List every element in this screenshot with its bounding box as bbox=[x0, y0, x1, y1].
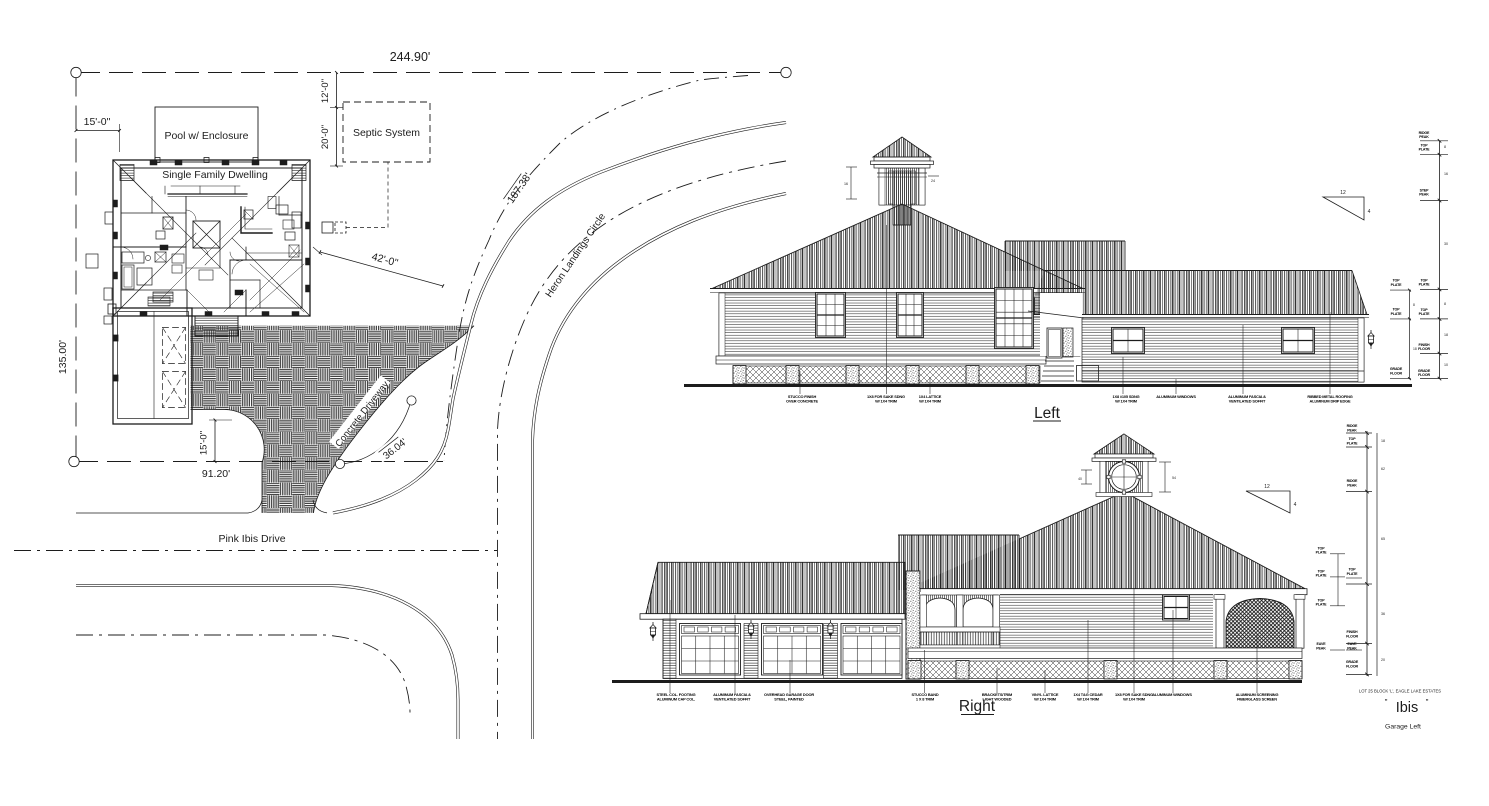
svg-text:PLATE: PLATE bbox=[1316, 574, 1328, 578]
svg-text:18: 18 bbox=[1444, 333, 1448, 337]
svg-text:ALUMINUM WINDOWS: ALUMINUM WINDOWS bbox=[1156, 394, 1196, 399]
svg-text:PEAK: PEAK bbox=[1347, 428, 1357, 432]
svg-text:18: 18 bbox=[1381, 439, 1385, 443]
svg-text:Garage Left: Garage Left bbox=[1385, 724, 1421, 731]
svg-text:54: 54 bbox=[1172, 476, 1176, 480]
svg-text:ALUMINUM CAP COL.: ALUMINUM CAP COL. bbox=[657, 697, 695, 702]
svg-text:8: 8 bbox=[1444, 145, 1446, 149]
svg-text:10: 10 bbox=[1444, 363, 1448, 367]
svg-text:20'-0": 20'-0" bbox=[320, 125, 331, 149]
svg-text:91.20': 91.20' bbox=[202, 468, 230, 480]
svg-text:FLOOR: FLOOR bbox=[1418, 373, 1430, 377]
svg-text:18: 18 bbox=[1413, 347, 1417, 351]
svg-text:16: 16 bbox=[1444, 172, 1448, 176]
svg-text:Pink Ibis Drive: Pink Ibis Drive bbox=[218, 533, 285, 545]
svg-text:Septic System: Septic System bbox=[353, 127, 420, 139]
svg-text:ALUMINUM WINDOWS: ALUMINUM WINDOWS bbox=[1152, 692, 1192, 697]
svg-text:PLATE: PLATE bbox=[1391, 283, 1403, 287]
svg-text:W/ 1X4 TRIM: W/ 1X4 TRIM bbox=[1123, 697, 1145, 702]
svg-text:W/ 1X4 TRIM: W/ 1X4 TRIM bbox=[919, 399, 941, 404]
svg-text:244.90': 244.90' bbox=[390, 50, 431, 64]
svg-text:": " bbox=[1385, 698, 1388, 707]
svg-text:20: 20 bbox=[1381, 658, 1385, 662]
svg-text:OVER CONCRETE: OVER CONCRETE bbox=[786, 399, 819, 404]
svg-text:12: 12 bbox=[1264, 484, 1270, 490]
svg-text:FIBERGLASS SCREEN: FIBERGLASS SCREEN bbox=[1237, 697, 1277, 702]
svg-text:8: 8 bbox=[1444, 302, 1446, 306]
svg-text:PLATE: PLATE bbox=[1316, 603, 1328, 607]
svg-text:15'-0": 15'-0" bbox=[84, 116, 111, 128]
svg-text:Pool w/ Enclosure: Pool w/ Enclosure bbox=[164, 130, 248, 142]
svg-text:8: 8 bbox=[1413, 303, 1415, 307]
svg-text:4: 4 bbox=[1368, 209, 1371, 215]
svg-text:W/ 1X4 TRIM: W/ 1X4 TRIM bbox=[1034, 697, 1056, 702]
svg-text:PLATE: PLATE bbox=[1391, 312, 1403, 316]
svg-text:FLOOR: FLOOR bbox=[1418, 347, 1430, 351]
svg-text:Single Family Dwelling: Single Family Dwelling bbox=[162, 169, 268, 181]
svg-text:65: 65 bbox=[1381, 537, 1385, 541]
svg-text:16: 16 bbox=[844, 182, 848, 186]
svg-text:FLOOR: FLOOR bbox=[1346, 634, 1358, 638]
svg-text:40: 40 bbox=[1078, 477, 1082, 481]
svg-text:VENTILATED SOFFIT: VENTILATED SOFFIT bbox=[714, 697, 751, 702]
svg-text:PEAK: PEAK bbox=[1419, 135, 1429, 139]
svg-text:62: 62 bbox=[1381, 467, 1385, 471]
svg-text:W/ 1X4 TRIM: W/ 1X4 TRIM bbox=[875, 399, 897, 404]
svg-text:12'-0": 12'-0" bbox=[320, 79, 331, 103]
svg-text:1 X 8 TRIM: 1 X 8 TRIM bbox=[916, 697, 934, 702]
svg-text:12: 12 bbox=[1340, 190, 1346, 196]
svg-text:PLATE: PLATE bbox=[1419, 148, 1431, 152]
svg-text:Right: Right bbox=[959, 698, 996, 715]
svg-text:Left: Left bbox=[1034, 405, 1061, 422]
svg-text:PLATE: PLATE bbox=[1316, 551, 1328, 555]
svg-text:FLOOR: FLOOR bbox=[1346, 664, 1358, 668]
svg-text:135.00': 135.00' bbox=[57, 340, 69, 374]
svg-text:PEAK: PEAK bbox=[1347, 483, 1357, 487]
svg-text:36: 36 bbox=[1381, 612, 1385, 616]
svg-text:VENTILATED SOFFIT: VENTILATED SOFFIT bbox=[1229, 399, 1266, 404]
svg-text:LOT 25 BLOCK 'L', EAGLE LAKE E: LOT 25 BLOCK 'L', EAGLE LAKE ESTATES bbox=[1359, 689, 1441, 694]
svg-text:ALUMINUM DRIP EDGE: ALUMINUM DRIP EDGE bbox=[1310, 399, 1351, 404]
svg-text:PLATE: PLATE bbox=[1347, 572, 1359, 576]
svg-text:W/ 1X4 TRIM: W/ 1X4 TRIM bbox=[1115, 399, 1137, 404]
svg-text:PLATE: PLATE bbox=[1419, 312, 1431, 316]
svg-text:Ibis: Ibis bbox=[1396, 700, 1419, 716]
svg-text:W/ 1X4 TRIM: W/ 1X4 TRIM bbox=[1077, 697, 1099, 702]
svg-text:STEEL, PAINTED: STEEL, PAINTED bbox=[774, 697, 804, 702]
svg-text:15'-0": 15'-0" bbox=[199, 431, 210, 455]
svg-text:PEAK: PEAK bbox=[1419, 193, 1429, 197]
svg-text:FLOOR: FLOOR bbox=[1390, 371, 1402, 375]
svg-text:24: 24 bbox=[931, 179, 935, 183]
svg-text:PEAK: PEAK bbox=[1316, 646, 1326, 650]
svg-text:PLATE: PLATE bbox=[1347, 441, 1359, 445]
svg-text:4: 4 bbox=[1294, 502, 1297, 508]
svg-text:30: 30 bbox=[1444, 242, 1448, 246]
svg-text:PLATE: PLATE bbox=[1419, 283, 1431, 287]
svg-text:": " bbox=[1426, 698, 1429, 707]
